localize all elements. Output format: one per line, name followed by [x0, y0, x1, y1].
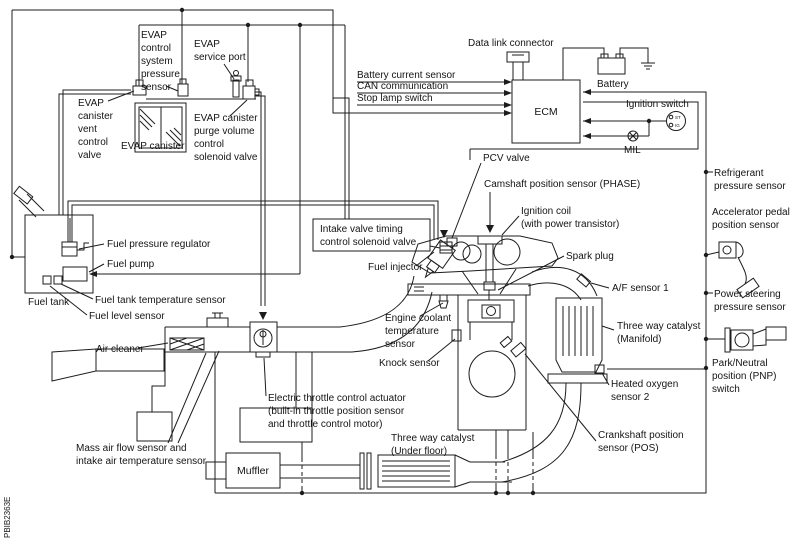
label-power-steering-sensor: Power steering [714, 289, 781, 300]
label-data-link-connector: Data link connector [468, 38, 554, 49]
electric-throttle-actuator-icon [250, 322, 277, 357]
label-catalyst-under-floor: Three way catalyst [391, 433, 475, 444]
svg-text:sensor: sensor [141, 82, 172, 93]
battery-icon [598, 54, 625, 74]
svg-text:control: control [78, 137, 108, 148]
fuel-tank-icon [14, 186, 93, 293]
svg-text:(with power transistor): (with power transistor) [521, 219, 619, 230]
label-evap-pressure-sensor: EVAP [141, 30, 167, 41]
label-ecm: ECM [534, 106, 557, 118]
ignition-switch-icon: ST IG [667, 112, 686, 131]
svg-text:sensor (POS): sensor (POS) [598, 443, 659, 454]
svg-text:intake air temperature sensor: intake air temperature sensor [76, 456, 207, 467]
svg-text:sensor: sensor [385, 339, 416, 350]
label-mil: MIL [624, 145, 641, 156]
engine-control-component-diagram: ST IG [0, 0, 802, 542]
fuel-level-sensor-icon [43, 276, 51, 284]
label-air-cleaner: Air cleaner [96, 344, 144, 355]
mass-air-flow-sensor-icon [207, 313, 228, 327]
label-evap-service-port: EVAP [194, 39, 220, 50]
svg-text:system: system [141, 56, 173, 67]
label-fuel-tank-temp-sensor: Fuel tank temperature sensor [95, 295, 226, 306]
label-coolant-sensor: Engine coolant [385, 313, 451, 324]
svg-text:(Under floor): (Under floor) [391, 446, 447, 457]
svg-text:control solenoid valve: control solenoid valve [320, 237, 417, 248]
engine-coolant-temp-sensor-icon [439, 295, 448, 308]
label-knock-sensor: Knock sensor [379, 358, 440, 369]
svg-text:and throttle control motor): and throttle control motor) [268, 419, 383, 430]
label-fuel-injector: Fuel injector [368, 262, 423, 273]
label-af-sensor-1: A/F sensor 1 [612, 283, 669, 294]
label-evap-purge-valve: EVAP canister [194, 113, 258, 124]
label-evap-vent-valve: EVAP [78, 98, 104, 109]
svg-text:(Manifold): (Manifold) [617, 334, 661, 345]
label-stop-lamp-switch: Stop lamp switch [357, 93, 433, 104]
label-fuel-level-sensor: Fuel level sensor [89, 311, 165, 322]
label-fuel-pump: Fuel pump [107, 259, 155, 270]
ignition-position-ig: IG [675, 123, 680, 128]
label-evap-canister: EVAP canister [121, 141, 185, 152]
svg-text:pressure sensor: pressure sensor [714, 181, 786, 192]
label-spark-plug: Spark plug [566, 251, 614, 262]
fuel-pressure-regulator-icon [62, 242, 89, 256]
label-fuel-tank: Fuel tank [28, 297, 70, 308]
svg-text:sensor 2: sensor 2 [611, 392, 650, 403]
label-fuel-pressure-regulator: Fuel pressure regulator [107, 239, 211, 250]
svg-text:(built-in throttle position se: (built-in throttle position sensor [268, 406, 405, 417]
figure-code: PBIB2363E [3, 497, 12, 538]
svg-text:vent: vent [78, 124, 97, 135]
label-heated-o2-sensor: Heated oxygen [611, 379, 678, 390]
label-maf-sensor: Mass air flow sensor and [76, 443, 187, 454]
label-intake-valve-timing: Intake valve timing [320, 224, 403, 235]
diagram-canvas: ST IG [0, 0, 802, 542]
ignition-coil-icon [478, 236, 502, 300]
label-pnp-switch: Park/Neutral [712, 358, 768, 369]
svg-text:temperature: temperature [385, 326, 439, 337]
label-accel-pedal-sensor: Accelerator pedal [712, 207, 790, 218]
evap-service-port-icon [231, 71, 241, 98]
pnp-switch-icon [725, 327, 786, 352]
svg-text:switch: switch [712, 384, 740, 395]
svg-text:position (PNP): position (PNP) [712, 371, 776, 382]
label-crankshaft-sensor: Crankshaft position [598, 430, 684, 441]
label-battery-current-sensor: Battery current sensor [357, 70, 456, 81]
knock-sensor-icon [452, 330, 461, 341]
svg-text:solenoid valve: solenoid valve [194, 152, 258, 163]
label-battery: Battery [597, 79, 629, 90]
ignition-position-st: ST [675, 115, 681, 120]
label-muffler: Muffler [237, 465, 269, 477]
label-ignition-coil: Ignition coil [521, 206, 571, 217]
data-link-connector-icon [507, 52, 529, 80]
label-pcv-valve: PCV valve [483, 153, 530, 164]
label-refrigerant-sensor: Refrigerant [714, 168, 764, 179]
diagram-labels: EVAP control system pressure sensor EVAP… [3, 30, 790, 538]
svg-text:control: control [194, 139, 224, 150]
svg-text:canister: canister [78, 111, 114, 122]
fuel-tank-temperature-sensor-icon [54, 276, 62, 284]
svg-text:purge volume: purge volume [194, 126, 255, 137]
evap-pressure-sensor-icon [178, 79, 188, 96]
svg-text:pressure sensor: pressure sensor [714, 302, 786, 313]
label-catalyst-manifold: Three way catalyst [617, 321, 701, 332]
svg-text:control: control [141, 43, 171, 54]
label-electric-throttle: Electric throttle control actuator [268, 393, 407, 404]
svg-text:service port: service port [194, 52, 246, 63]
svg-text:valve: valve [78, 150, 102, 161]
svg-text:pressure: pressure [141, 69, 180, 80]
fuel-pump-icon [63, 267, 87, 281]
label-camshaft-sensor: Camshaft position sensor (PHASE) [484, 179, 640, 190]
label-can-communication: CAN communication [357, 81, 448, 92]
svg-text:position sensor: position sensor [712, 220, 780, 231]
label-ignition-switch: Ignition switch [626, 99, 689, 110]
